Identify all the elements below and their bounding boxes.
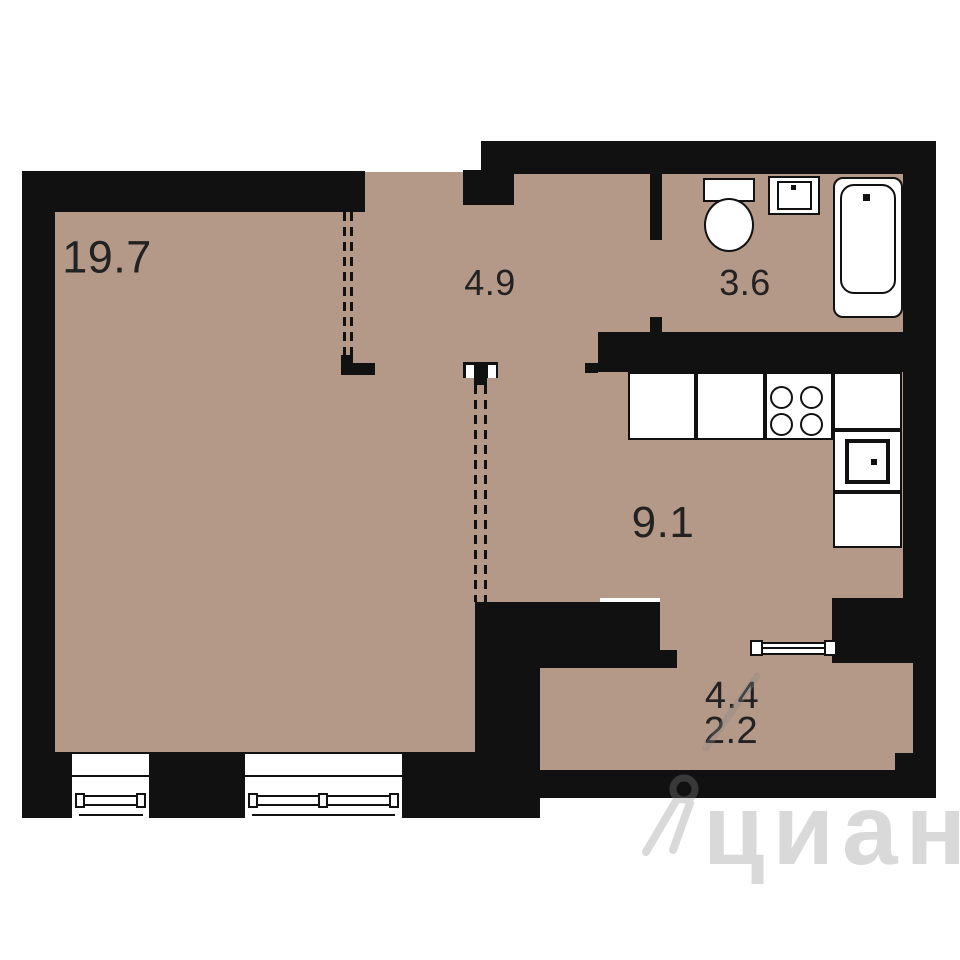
wall-left-outer (22, 171, 55, 818)
bathtub-drain-dot (863, 194, 870, 201)
dashed-partition-wardrobe (350, 212, 353, 355)
kitchen-counter (833, 492, 902, 548)
window-inner-line (72, 775, 149, 777)
window-end-post (389, 793, 399, 808)
window-end-post (75, 793, 85, 808)
wall-top-step (463, 170, 514, 205)
kitchen-counter (628, 372, 696, 440)
window-sill-line (79, 814, 143, 816)
kitchen-sink-inner (845, 439, 890, 484)
window-end-post (750, 640, 763, 656)
wall-top-upper (481, 141, 936, 174)
window-recess (245, 754, 402, 818)
kitchen-counter (696, 372, 765, 440)
wall-bath-door-stub-upper (650, 173, 662, 240)
window-end-post (136, 793, 146, 808)
stove-burner-icon (800, 413, 823, 436)
wall-column-center (475, 602, 540, 818)
door-frame-notch (488, 365, 496, 378)
window-center-post (318, 793, 328, 808)
room-area-label: 9.1 (632, 501, 695, 545)
kitchen-counter (833, 372, 902, 430)
door-frame-stem (474, 378, 487, 385)
window-inner-line (245, 775, 402, 777)
wall-balcony-bottom (540, 770, 936, 798)
room-area-label: 4.9 (464, 265, 516, 301)
wall-bath-door-stub-lower (650, 317, 662, 332)
wall-kitchen-bottom-right (832, 598, 936, 663)
washbasin-drain-dot (791, 185, 796, 190)
room-area-label: 2.2 (704, 712, 758, 750)
room-area-label: 3.6 (719, 265, 771, 301)
dashed-partition-corridor (474, 385, 477, 602)
dashed-partition-corridor (484, 385, 487, 602)
stove-burner-icon (770, 386, 793, 409)
room-area-label: 19.7 (62, 235, 152, 280)
wall-balcony-top-step (660, 650, 677, 668)
wall-balcony-right-step (895, 753, 913, 770)
window-icon (76, 795, 145, 806)
door-frame-notch (466, 365, 474, 378)
window-sill-line (252, 814, 395, 816)
window-mid-line (753, 647, 835, 649)
wall-right-outer (903, 141, 936, 663)
window-end-post (824, 640, 837, 656)
window-recess (72, 754, 149, 818)
wall-balcony-top (540, 602, 660, 668)
floor-plan: 19.7 4.9 3.6 9.1 4.4 2.2 циан (0, 0, 960, 960)
stove-burner-icon (770, 413, 793, 436)
partition-end-cap (341, 355, 353, 375)
wall-door-post-left (585, 363, 598, 373)
toilet-bowl-icon (704, 198, 754, 252)
partition-end-cap (353, 363, 375, 375)
wall-bathroom-bottom (598, 332, 936, 372)
wall-top-living (22, 171, 365, 212)
stove-burner-icon (800, 386, 823, 409)
dashed-partition-wardrobe (343, 212, 346, 355)
window-end-post (248, 793, 258, 808)
kitchen-sink-drain-dot (871, 459, 877, 465)
